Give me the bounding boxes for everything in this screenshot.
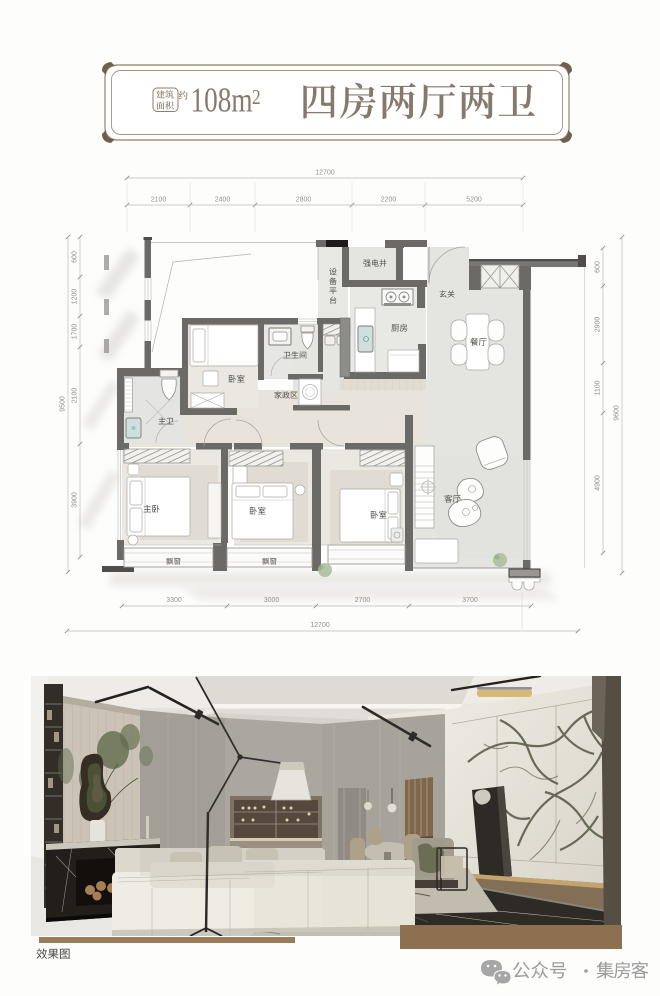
svg-text:9600: 9600 [614, 405, 621, 421]
svg-text:3300: 3300 [166, 597, 182, 604]
svg-text:2100: 2100 [72, 388, 79, 404]
svg-text:3700: 3700 [462, 597, 478, 604]
svg-text:1100: 1100 [595, 380, 602, 395]
svg-text:2200: 2200 [381, 197, 397, 204]
svg-text:2: 2 [252, 87, 261, 110]
svg-text:108m: 108m [191, 80, 253, 119]
svg-text:12700: 12700 [310, 622, 330, 629]
svg-text:12700: 12700 [315, 170, 335, 177]
svg-text:1200: 1200 [72, 289, 79, 305]
svg-text:9500: 9500 [60, 396, 67, 412]
svg-text:2700: 2700 [355, 597, 371, 604]
svg-text:5200: 5200 [466, 197, 482, 204]
svg-text:4900: 4900 [595, 475, 602, 491]
svg-text:3000: 3000 [264, 597, 280, 604]
svg-text:2800: 2800 [296, 197, 312, 204]
svg-text:2900: 2900 [595, 317, 602, 333]
svg-text:2100: 2100 [151, 197, 167, 204]
svg-text:2400: 2400 [215, 197, 231, 204]
svg-text:600: 600 [595, 261, 602, 273]
svg-text:1700: 1700 [72, 324, 79, 340]
svg-text:600: 600 [72, 251, 79, 263]
svg-text:3900: 3900 [72, 492, 79, 508]
